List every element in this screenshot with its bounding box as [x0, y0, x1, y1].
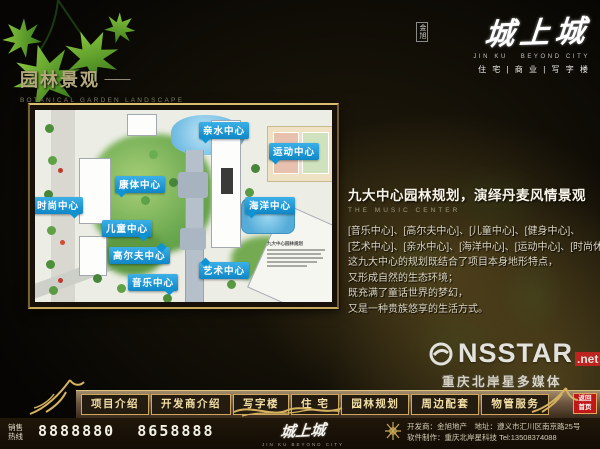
developer-line: 开发商：金旭地产 地址：遵义市汇川区南京路25号 [407, 421, 580, 432]
map-legend-title: 九大中心园林规划 [267, 240, 323, 246]
description-heading: 九大中心园林规划，演绎丹麦风情景观 [348, 184, 596, 204]
callout-gaoerfu-center: 高尔夫中心 [109, 247, 170, 264]
page-title: 园林景观 [20, 70, 100, 90]
watermark-suffix: .net [575, 352, 600, 366]
watermark-caption: 重庆北岸星多媒体 [442, 371, 600, 390]
callout-yinyue-center: 音乐中心 [128, 274, 178, 291]
map-building [127, 114, 157, 136]
back-home-button[interactable]: 返回 首页 [573, 393, 597, 414]
map-plaza [178, 172, 208, 198]
callout-yundong-center: 运动中心 [269, 143, 319, 160]
callout-shishang-center: 时尚中心 [35, 197, 83, 214]
callout-ertong-center: 儿童中心 [102, 220, 152, 237]
brand-name: 城上城 [483, 6, 592, 54]
description-line: 又形成自然的生态环境； [348, 271, 596, 287]
callout-yishu-center: 艺术中心 [199, 262, 249, 279]
callout-kangti-center: 康体中心 [115, 176, 165, 193]
landscape-map: 九大中心园林规划 亲水中心 运动中心 康体中心 时尚中心 海洋中心 儿童中心 高… [35, 110, 332, 302]
developer-info: 开发商：金旭地产 地址：遵义市汇川区南京路25号 软件制作：重庆北岸星科技 Te… [384, 421, 580, 443]
callout-qinshui-center: 亲水中心 [199, 122, 249, 139]
brand-latin: JIN KU BEYOND CITY [410, 54, 590, 60]
nav-item-project-intro[interactable]: 项目介绍 [81, 394, 149, 415]
footer-logo: 城上城 JIN KU BEYOND CITY [262, 420, 344, 447]
nav-item-property-service[interactable]: 物管服务 [481, 394, 549, 415]
map-plaza [180, 228, 206, 250]
nav-item-office[interactable]: 写字楼 [233, 394, 289, 415]
landscape-map-panel: 九大中心园林规划 亲水中心 运动中心 康体中心 时尚中心 海洋中心 儿童中心 高… [28, 103, 339, 309]
page: 金旭 城上城 JIN KU BEYOND CITY 住 宅 | 商 业 | 写 … [0, 0, 600, 449]
description-line: 既充满了童话世界的梦幻， [348, 286, 596, 302]
map-flowers [58, 168, 63, 173]
description-line: [音乐中心]、[高尔夫中心]、[儿童中心]、[健身中心]、 [348, 224, 596, 240]
map-building [79, 236, 107, 276]
watermark: NSSTAR .net 重庆北岸星多媒体 [428, 338, 600, 390]
map-building [79, 158, 111, 224]
callout-haiyang-center: 海洋中心 [245, 197, 295, 214]
hotline-label: 销售 热线 [8, 423, 23, 441]
map-shape [221, 168, 233, 194]
footer-bar: 销售 热线 8888880 8658888 城上城 JIN KU BEYOND … [0, 418, 600, 449]
title-dash: —— [104, 70, 128, 86]
brand-tagline: 住 宅 | 商 业 | 写 字 楼 [410, 64, 590, 75]
developer-line: 软件制作：重庆北岸星科技 Tel:13508374088 [407, 432, 580, 443]
description-subheading: THE MUSIC CENTER [348, 207, 596, 214]
main-nav: 项目介绍 开发商介绍 写字楼 住 宅 园林规划 周边配套 物管服务 返回 首页 [76, 390, 600, 418]
description-line: [艺术中心]、[亲水中心]、[海洋中心]、[运动中心]、[时尚休闲中心]。 [348, 240, 596, 256]
nav-item-garden-plan[interactable]: 园林规划 [341, 394, 409, 415]
watermark-brand: NSSTAR [458, 338, 573, 369]
description-line: 又是一种贵族悠享的生活方式。 [348, 302, 596, 318]
brand-seal: 金旭 [416, 22, 428, 42]
map-trees [45, 124, 54, 133]
hotline-numbers: 8888880 8658888 [38, 422, 215, 440]
nav-item-residence[interactable]: 住 宅 [291, 394, 339, 415]
page-title-block: 园林景观 —— BOTANICAL GARDEN LANDSCAPE [20, 66, 184, 104]
description-block: 九大中心园林规划，演绎丹麦风情景观 THE MUSIC CENTER [音乐中心… [348, 184, 596, 317]
snowflake-ornament-icon [384, 421, 402, 441]
description-line: 这九大中心的规划既结合了项目本身地形特点， [348, 255, 596, 271]
nav-item-developer-intro[interactable]: 开发商介绍 [151, 394, 231, 415]
nav-item-surroundings[interactable]: 周边配套 [411, 394, 479, 415]
map-legend: 九大中心园林规划 [267, 240, 329, 267]
brand-logo: 金旭 城上城 JIN KU BEYOND CITY 住 宅 | 商 业 | 写 … [410, 8, 590, 75]
watermark-logo-icon [428, 341, 454, 367]
